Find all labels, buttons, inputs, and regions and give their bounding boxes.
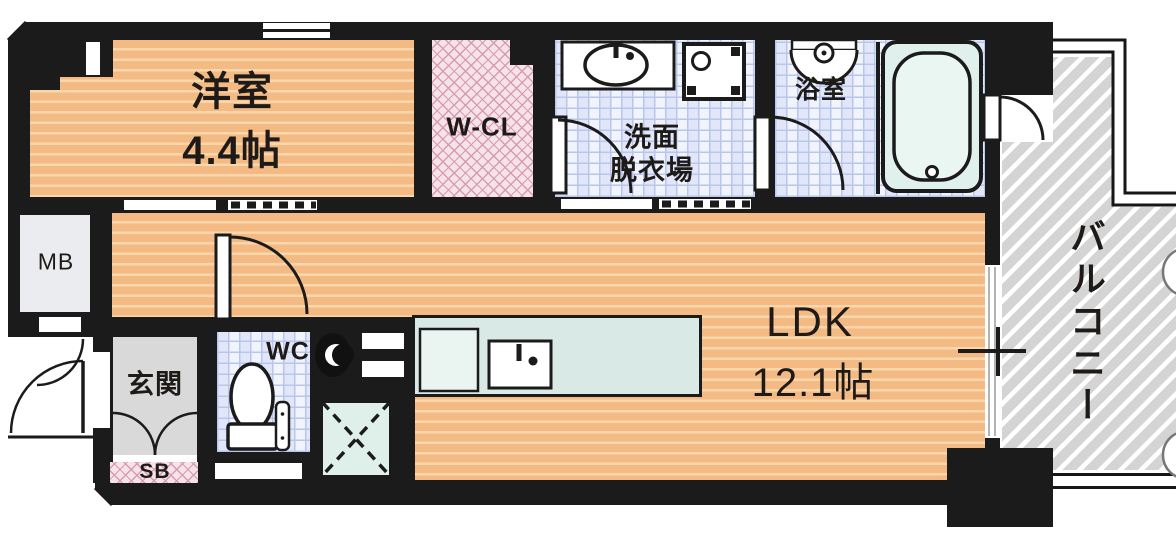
bathroom-floor [775,40,985,197]
balcony-label: バルコニー [1059,218,1111,428]
wall-room-divider-west-wcl [414,22,432,213]
washroom-label-line2: 脱衣場 [610,149,694,188]
western-room-top-window [263,23,330,38]
ldk-label: LDK [766,298,854,346]
wall-divider-wcl-washroom [533,22,555,213]
wall-divider-washroom-bath [755,22,775,213]
shoe-box-label: SB [139,460,170,484]
toilet-room-door-strip [215,463,302,479]
kitchen-counter [412,315,702,397]
entrance-label: 玄関 [127,363,183,402]
wc-wall-shelf-1 [362,333,404,349]
meter-box-label: MB [38,249,75,276]
sliding-door-panel-washroom [560,198,653,210]
toilet-room-label: WC [266,338,310,367]
balcony-door-gap [985,95,1000,139]
sliding-door-panel-washroom-2 [658,198,752,210]
entrance-doorway-gap [93,352,110,428]
wall-wcl-notch [510,40,533,65]
wc-wall-shelf-2 [362,361,404,377]
sliding-door-panel-west [123,199,217,211]
wall-slot-top-left [86,42,100,75]
sliding-door-panel-west-2 [227,199,318,211]
wall-left [8,22,30,202]
wall-top-right-chunk [985,22,1053,95]
floor-plan: 洋室 4.4帖 W-CL 洗面 脱衣場 浴室 LDK 12.1帖 MB 玄関 W… [0,0,1176,544]
wall-top-left-block-a [30,40,60,90]
bathroom-label: 浴室 [795,70,847,106]
wall-bottom [95,480,947,505]
western-room-size: 4.4帖 [182,118,282,176]
wall-top [8,22,985,40]
wall-pillar-bottom-right [947,448,1053,527]
western-room-label: 洋室 [191,59,273,117]
entrance-door-arc [8,339,93,437]
walk-in-closet-label: W-CL [446,112,517,143]
pipe-space-box [320,400,392,478]
ldk-size: 12.1帖 [752,350,875,408]
entrance-door-frame [37,315,83,334]
balcony-window [985,265,1000,438]
